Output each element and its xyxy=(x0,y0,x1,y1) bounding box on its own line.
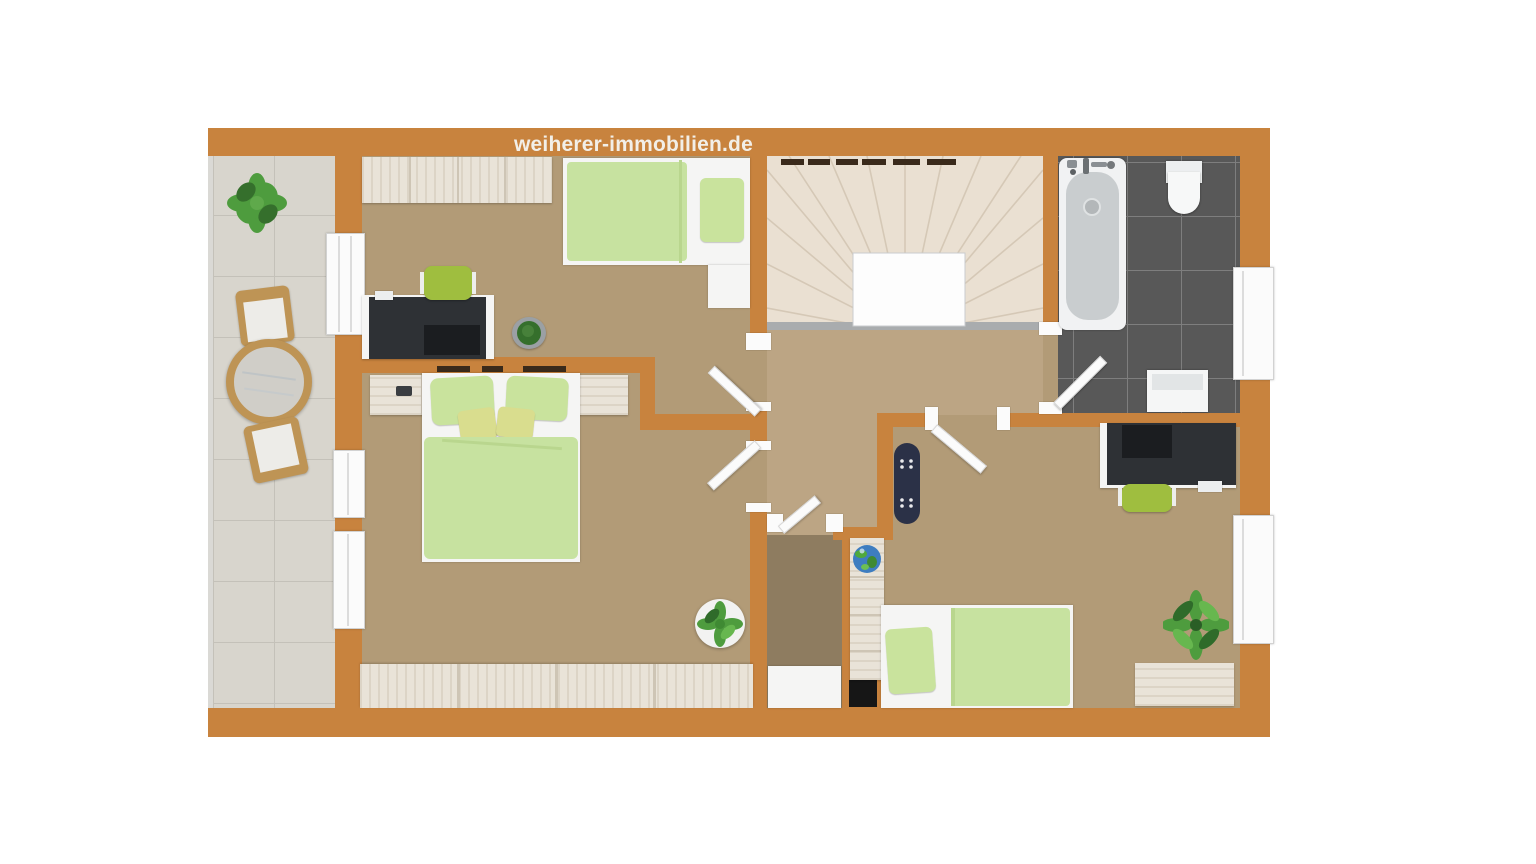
chair-armrest xyxy=(1118,488,1122,506)
duvet-fold xyxy=(951,608,955,706)
globe xyxy=(852,544,882,574)
bedroom3-desk-chair xyxy=(1122,484,1172,512)
laptop xyxy=(424,325,480,355)
window-mullion xyxy=(347,453,349,515)
wall-hall-bedroom3-top-a xyxy=(877,413,930,427)
wall-hall-bedroom3 xyxy=(877,413,893,535)
hallway-floor-corridor xyxy=(767,415,877,535)
bedroom1-bed xyxy=(563,158,750,265)
wardrobe-seam xyxy=(653,664,656,708)
shelf-seam xyxy=(850,614,884,616)
bed-duvet xyxy=(951,608,1070,706)
stair-railing-dash xyxy=(836,159,858,165)
closet-cabinet xyxy=(768,666,841,708)
shelf-seam xyxy=(850,650,884,652)
watermark-text: weiherer-immobilien.de xyxy=(514,133,724,157)
stair-railing-dash xyxy=(781,159,804,165)
balcony-door-mullion xyxy=(338,236,340,332)
sink-basin xyxy=(1152,374,1203,390)
bedroom2-wardrobe xyxy=(360,664,753,708)
bedroom1-potted-plant xyxy=(512,317,546,349)
wardrobe-seam xyxy=(555,664,558,708)
floor-plan-canvas: weiherer-immobilien.de xyxy=(0,0,1536,864)
plant-foliage xyxy=(522,325,534,337)
bed-pillow xyxy=(885,626,936,694)
bed-duvet xyxy=(567,162,687,261)
bedroom3-bed xyxy=(881,605,1073,708)
table-glass-reflection xyxy=(244,388,294,397)
balcony-door xyxy=(326,233,365,335)
balcony-chair-top xyxy=(235,285,295,347)
door-frame xyxy=(746,333,771,350)
headboard-wall-dash xyxy=(437,366,470,372)
wall-vestibule xyxy=(655,414,750,430)
headboard-wall-dash xyxy=(523,366,566,372)
stair-railing-dash xyxy=(927,159,956,165)
chair-armrest xyxy=(472,272,476,294)
chair-armrest xyxy=(1172,488,1176,506)
stair-treads xyxy=(767,156,1043,330)
plant-foliage xyxy=(695,599,745,648)
bedroom3-plant xyxy=(1163,590,1229,660)
headboard-wall-dash xyxy=(482,366,503,372)
stair-railing-dash xyxy=(808,159,830,165)
door-frame xyxy=(826,514,843,532)
wardrobe-seam xyxy=(504,157,506,203)
bedroom2-window-lower xyxy=(333,531,365,629)
chair-cushion xyxy=(243,298,288,343)
laptop xyxy=(1122,425,1172,458)
bed-duvet xyxy=(424,437,578,559)
remote-control xyxy=(396,386,412,396)
bedroom1-foot-chest xyxy=(708,265,750,308)
balcony-railing xyxy=(208,156,213,708)
door-frame xyxy=(997,407,1010,430)
bedroom3-sideboard xyxy=(1135,663,1234,706)
balcony-plant xyxy=(224,170,290,236)
bathtub-basin xyxy=(1066,172,1119,320)
bedroom3-window xyxy=(1233,515,1274,644)
toilet-bowl xyxy=(1168,172,1200,214)
bathroom-sink xyxy=(1147,370,1208,412)
stair-railing-dash xyxy=(862,159,886,165)
bed-pillow-small xyxy=(496,406,536,440)
window-mullion xyxy=(1242,519,1244,640)
bedroom2-bed xyxy=(422,373,580,562)
wardrobe-seam xyxy=(457,157,459,203)
chair-armrest xyxy=(420,272,424,294)
desk-accessory xyxy=(1198,481,1222,492)
balcony-chair-bottom xyxy=(243,416,310,484)
hallway-floor-upper xyxy=(767,330,1043,415)
wall-bathroom-left xyxy=(1043,156,1058,322)
bedroom3-desk xyxy=(1100,423,1236,488)
bedroom1-wardrobe xyxy=(362,157,552,203)
wall-right xyxy=(1240,128,1270,737)
chair-cushion xyxy=(252,423,300,472)
wall-bedroom1-stairs xyxy=(750,156,767,333)
bathtub xyxy=(1059,158,1126,330)
wall-bedroom1-bedroom2 xyxy=(362,357,655,373)
balcony-door-mullion xyxy=(350,236,352,332)
wardrobe-seam xyxy=(409,157,411,203)
bedroom1-desk xyxy=(362,295,494,359)
door-frame xyxy=(746,503,771,512)
shelf-seam xyxy=(850,576,884,578)
bathtub-drain xyxy=(1083,198,1101,216)
staircase xyxy=(767,156,1043,330)
wardrobe-seam xyxy=(457,664,460,708)
balcony-table xyxy=(226,339,312,425)
table-glass-reflection xyxy=(242,371,296,380)
bathtub-faucet xyxy=(1061,156,1123,182)
bedroom1-desk-chair xyxy=(424,266,472,300)
window-mullion xyxy=(347,534,349,626)
bed-pillow xyxy=(700,178,744,242)
stair-railing-dash xyxy=(893,159,920,165)
window-mullion xyxy=(1242,271,1244,376)
chimney-shaft xyxy=(849,680,877,707)
bedroom2-potted-plant xyxy=(695,599,745,648)
wall-bottom xyxy=(208,708,1270,737)
wall-jog-vertical xyxy=(640,357,655,430)
skateboard xyxy=(893,442,921,525)
duvet-fold xyxy=(679,160,682,263)
desk-accessory xyxy=(375,291,393,300)
bathroom-window xyxy=(1233,267,1274,380)
bedroom2-window-upper xyxy=(333,450,365,518)
